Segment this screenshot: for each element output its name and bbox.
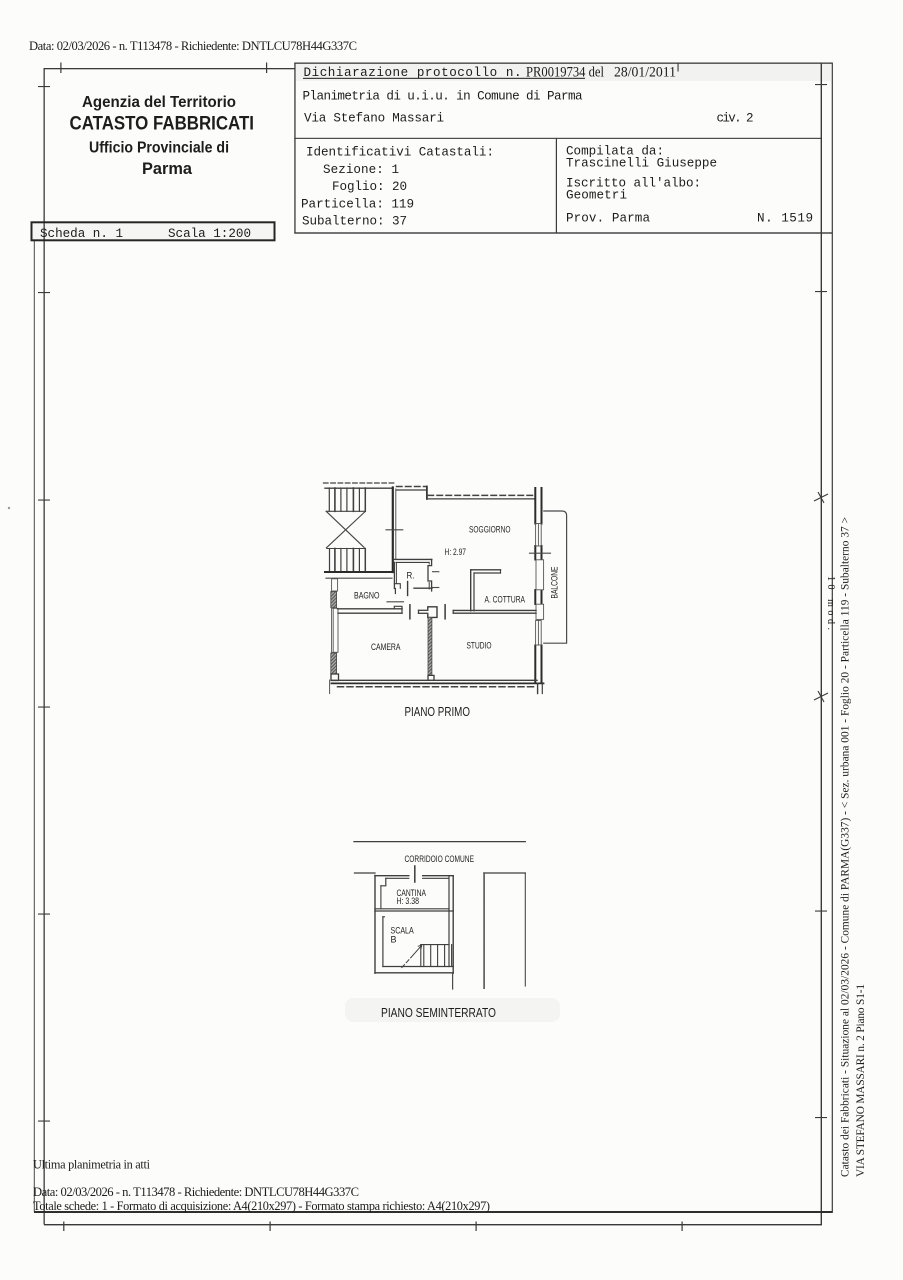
- svg-text:CORRIDOIO COMUNE: CORRIDOIO COMUNE: [405, 854, 475, 864]
- svg-text:Via Stefano Massari: Via Stefano Massari: [304, 112, 444, 126]
- svg-text:Sezione: 1: Sezione: 1: [323, 163, 399, 177]
- svg-text:Totale schede: 1 - Formato di: Totale schede: 1 - Formato di acquisizio…: [33, 1199, 490, 1213]
- svg-text:STUDIO: STUDIO: [467, 641, 492, 651]
- svg-text:CAMERA: CAMERA: [371, 642, 401, 652]
- svg-text:Scheda n. 1: Scheda n. 1: [40, 227, 123, 241]
- svg-text:H: 2.97: H: 2.97: [445, 547, 467, 557]
- svg-text:Data: 02/03/2026 - n. T113478: Data: 02/03/2026 - n. T113478 - Richiede…: [33, 1185, 359, 1199]
- svg-text:BALCONE: BALCONE: [550, 566, 560, 598]
- svg-text:Particella: 119: Particella: 119: [301, 197, 414, 211]
- svg-text:Data: 02/03/2026 - n. T113478: Data: 02/03/2026 - n. T113478 - Richiede…: [29, 39, 357, 53]
- svg-text:Prov. Parma: Prov. Parma: [566, 212, 650, 226]
- svg-text:Scala 1:200: Scala 1:200: [168, 227, 251, 241]
- svg-text:H: 3.38: H: 3.38: [397, 896, 420, 906]
- svg-text:Agenzia del Territorio: Agenzia del Territorio: [82, 94, 236, 111]
- svg-text:Subalterno: 37: Subalterno: 37: [302, 215, 407, 229]
- svg-text:Geometri: Geometri: [566, 189, 627, 203]
- svg-text:PIANO SEMINTERRATO: PIANO SEMINTERRATO: [381, 1005, 496, 1020]
- svg-text:PIANO PRIMO: PIANO PRIMO: [405, 704, 471, 719]
- svg-text:N. 1519: N. 1519: [757, 212, 813, 226]
- svg-text:28/01/2011: 28/01/2011: [614, 65, 676, 81]
- svg-text:CATASTO FABBRICATI: CATASTO FABBRICATI: [70, 113, 255, 135]
- svg-text:Planimetria di u.i.u. in Comun: Planimetria di u.i.u. in Comune di Parma: [303, 90, 583, 104]
- svg-text:Trascinelli Giuseppe: Trascinelli Giuseppe: [566, 157, 717, 171]
- svg-text:Parma: Parma: [142, 159, 193, 178]
- svg-text:civ. 2: civ. 2: [717, 112, 754, 126]
- svg-text:BAGNO: BAGNO: [354, 591, 380, 601]
- svg-text:Foglio: 20: Foglio: 20: [332, 180, 407, 194]
- svg-text:Ufficio Provinciale di: Ufficio Provinciale di: [89, 140, 229, 157]
- svg-text:B: B: [391, 935, 397, 945]
- svg-text:VIA STEFANO MASSARI n. 2 Piano: VIA STEFANO MASSARI n. 2 Piano S1-1: [855, 984, 867, 1177]
- svg-text:Catasto dei Fabbricati - Situa: Catasto dei Fabbricati - Situazione al 0…: [840, 517, 852, 1177]
- svg-text:SOGGIORNO: SOGGIORNO: [469, 525, 511, 535]
- svg-text:Ultima planimetria in atti: Ultima planimetria in atti: [33, 1158, 151, 1172]
- svg-text:R.: R.: [407, 571, 415, 581]
- svg-text:A. COTTURA: A. COTTURA: [485, 595, 526, 605]
- svg-text:Identificativi Catastali:: Identificativi Catastali:: [306, 146, 494, 160]
- svg-text:10 mod.: 10 mod.: [825, 576, 836, 630]
